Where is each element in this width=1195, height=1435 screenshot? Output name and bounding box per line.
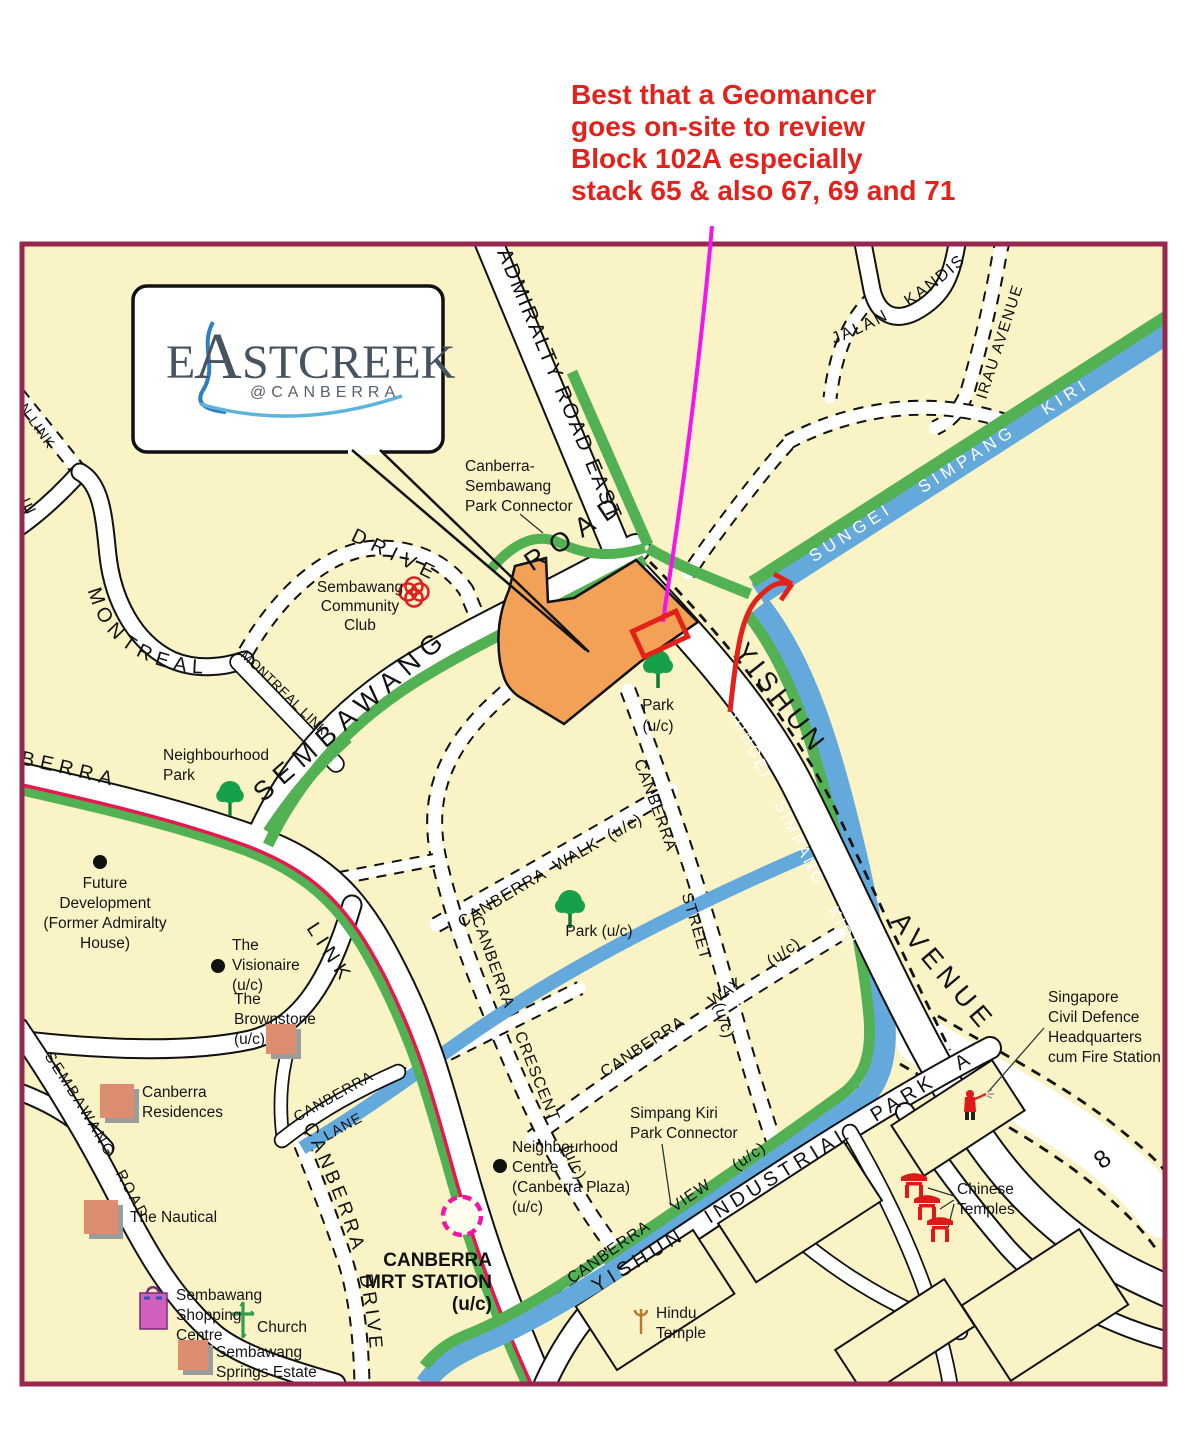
church-label: Church — [257, 1319, 307, 1336]
svg-text:The: The — [232, 937, 259, 954]
svg-text:Temples: Temples — [957, 1201, 1015, 1218]
svg-text:Chinese: Chinese — [957, 1181, 1014, 1198]
svg-text:Future: Future — [83, 875, 128, 892]
svg-text:Park Connector: Park Connector — [465, 498, 573, 515]
logo-text-e: E — [166, 336, 195, 389]
svg-text:cum Fire Station: cum Fire Station — [1048, 1049, 1161, 1066]
svg-text:(u/c): (u/c) — [643, 718, 674, 735]
svg-text:Park: Park — [163, 767, 195, 784]
svg-text:Singapore: Singapore — [1048, 989, 1119, 1006]
svg-text:MRT STATION: MRT STATION — [365, 1272, 492, 1293]
springs-estate-square — [178, 1340, 213, 1375]
annotation-line-1: Best that a Geomancer — [571, 79, 876, 110]
eastcreek-location-map-page: ADMIRALTY ROAD EAST ROAD SEMBAWANG MONTR… — [0, 0, 1195, 1430]
shopping-centre-icon — [140, 1287, 167, 1329]
future-development-dot — [93, 855, 107, 869]
svg-text:Park Connector: Park Connector — [630, 1125, 738, 1142]
svg-text:Residences: Residences — [142, 1104, 223, 1121]
svg-text:Neighbourhood: Neighbourhood — [512, 1139, 618, 1156]
svg-text:Headquarters: Headquarters — [1048, 1029, 1142, 1046]
svg-text:(Canberra Plaza): (Canberra Plaza) — [512, 1179, 630, 1196]
svg-text:(u/c): (u/c) — [452, 1294, 492, 1315]
svg-text:CANBERRA: CANBERRA — [383, 1250, 492, 1271]
svg-text:Hindu: Hindu — [656, 1305, 697, 1322]
svg-text:Neighbourhood: Neighbourhood — [163, 747, 269, 764]
mrt-station-circle — [443, 1197, 481, 1235]
svg-text:(u/c): (u/c) — [234, 1031, 265, 1048]
svg-text:Sembawang: Sembawang — [216, 1344, 302, 1361]
neighbourhood-centre-dot — [493, 1159, 507, 1173]
canberra-residences-square — [100, 1084, 139, 1123]
park-uc-central-label: Park (u/c) — [565, 923, 632, 940]
annotation-line-4: stack 65 & also 67, 69 and 71 — [571, 175, 955, 206]
svg-text:Centre: Centre — [512, 1159, 559, 1176]
logo-subtitle: @CANBERRA — [250, 384, 400, 401]
annotation-line-2: goes on-site to review — [571, 111, 865, 142]
svg-text:Civil Defence: Civil Defence — [1048, 1009, 1139, 1026]
nautical-square — [84, 1200, 123, 1239]
nautical-label: The Nautical — [130, 1209, 217, 1226]
svg-text:Temple: Temple — [656, 1325, 706, 1342]
svg-text:The: The — [234, 991, 261, 1008]
svg-text:Springs Estate: Springs Estate — [216, 1364, 317, 1381]
svg-text:Centre: Centre — [176, 1327, 223, 1344]
svg-text:House): House) — [80, 935, 130, 952]
svg-text:Sembawang: Sembawang — [465, 478, 551, 495]
svg-text:Club: Club — [344, 617, 376, 634]
brownstone-square — [266, 1024, 301, 1059]
logo-text-rest: STCREEK — [242, 336, 456, 389]
logo-text-a: A — [194, 320, 242, 393]
svg-text:(u/c): (u/c) — [512, 1199, 543, 1216]
svg-text:Development: Development — [59, 895, 151, 912]
svg-text:Shopping: Shopping — [176, 1307, 242, 1324]
svg-text:Visionaire: Visionaire — [232, 957, 300, 974]
svg-text:(Former Admiralty: (Former Admiralty — [43, 915, 166, 932]
svg-text:Sembawang: Sembawang — [176, 1287, 262, 1304]
svg-text:Canberra: Canberra — [142, 1084, 207, 1101]
svg-text:Simpang Kiri: Simpang Kiri — [630, 1105, 718, 1122]
annotation-line-3: Block 102A especially — [571, 143, 863, 174]
visionaire-dot — [211, 959, 225, 973]
map-canvas: ADMIRALTY ROAD EAST ROAD SEMBAWANG MONTR… — [0, 0, 1195, 1430]
svg-text:Canberra-: Canberra- — [465, 458, 535, 475]
svg-text:Sembawang: Sembawang — [317, 579, 403, 596]
svg-text:Brownstone: Brownstone — [234, 1011, 316, 1028]
svg-text:Community: Community — [321, 598, 400, 615]
svg-text:Park: Park — [642, 697, 674, 714]
